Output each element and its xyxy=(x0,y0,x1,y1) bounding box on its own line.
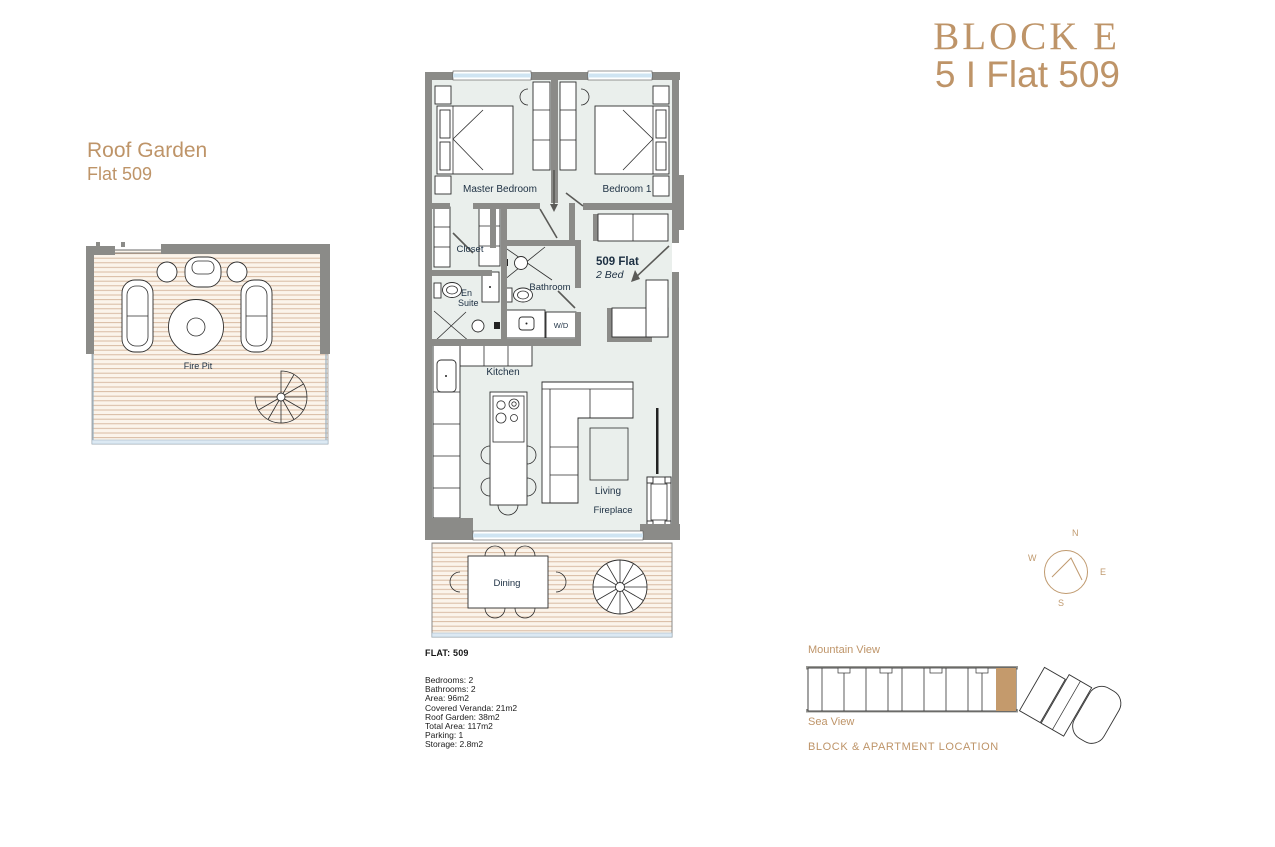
label-kitchen: Kitchen xyxy=(486,367,519,378)
location-caption: BLOCK & APARTMENT LOCATION xyxy=(808,741,999,753)
label-dining: Dining xyxy=(494,578,521,589)
roof-stool-right xyxy=(227,262,247,282)
roof-garden-heading: Roof Garden Flat 509 xyxy=(87,138,207,185)
label-wd: W/D xyxy=(554,321,569,330)
bathroom-vanity xyxy=(505,310,545,338)
fireplace-unit xyxy=(647,477,671,527)
label-master-bedroom: Master Bedroom xyxy=(463,184,537,195)
compass-n: N xyxy=(1072,528,1079,538)
roof-garden-title: Roof Garden xyxy=(87,138,207,163)
mountain-view-label: Mountain View xyxy=(808,644,880,656)
roof-garden-subtitle: Flat 509 xyxy=(87,163,207,185)
label-bedroom1: Bedroom 1 xyxy=(603,184,652,195)
roof-glass-railing xyxy=(92,440,328,444)
roof-table xyxy=(185,257,221,287)
flat-details-list: Bedrooms: 2 Bathrooms: 2 Area: 96m2 Cove… xyxy=(425,676,517,750)
roof-stool-left xyxy=(157,262,177,282)
compass-e: E xyxy=(1100,567,1106,577)
label-closet: Closet xyxy=(457,244,484,255)
compass-w: W xyxy=(1028,553,1037,563)
flat-number-title: 5 I Flat 509 xyxy=(935,54,1120,96)
compass-s: S xyxy=(1058,598,1064,608)
label-flat-name: 509 Flat xyxy=(596,256,639,268)
block-location-diagram xyxy=(805,660,1130,752)
tv-unit xyxy=(656,408,659,474)
flat-plan: Master Bedroom Bedroom 1 Closet En Suite… xyxy=(425,60,687,645)
ensuite-toilet xyxy=(434,283,462,299)
bedroom1-bench xyxy=(653,176,669,196)
bedroom1-bed xyxy=(595,106,669,174)
flat-details-heading: FLAT: 509 xyxy=(425,648,469,658)
bedroom1-nightstand xyxy=(653,86,669,104)
detail-row: Storage: 2.8m2 xyxy=(425,740,517,749)
bathroom-toilet xyxy=(505,288,533,302)
master-bed xyxy=(437,106,513,174)
fire-pit-label: Fire Pit xyxy=(184,361,213,371)
master-nightstand-top xyxy=(435,86,451,104)
label-ensuite-1: En xyxy=(461,288,472,298)
building-angled-wing xyxy=(1020,660,1126,752)
floorplan-sheet: BLOCK E 5 I Flat 509 Roof Garden Flat 50… xyxy=(0,0,1275,847)
roof-garden-plan: Fire Pit xyxy=(85,240,335,455)
label-ensuite-2: Suite xyxy=(458,298,479,308)
highlighted-apartment xyxy=(996,668,1016,711)
fire-pit xyxy=(169,300,224,355)
veranda-spiral-stair xyxy=(593,560,647,614)
label-flat-type: 2 Bed xyxy=(595,269,625,281)
closet-shelving xyxy=(434,207,450,267)
label-bathroom: Bathroom xyxy=(529,282,570,293)
master-nightstand-bottom xyxy=(435,176,451,194)
veranda-glass-railing xyxy=(432,633,672,637)
sea-view-label: Sea View xyxy=(808,716,854,728)
block-title: BLOCK E xyxy=(933,14,1120,59)
label-living: Living xyxy=(595,486,621,497)
kitchen-island xyxy=(490,392,527,505)
roof-sofa-left xyxy=(122,280,153,352)
compass-icon: N W E S xyxy=(1016,522,1116,622)
roof-sofa-right xyxy=(241,280,272,352)
label-fireplace: Fireplace xyxy=(593,505,632,516)
building-row xyxy=(806,666,1018,713)
hall-closet xyxy=(593,214,668,241)
